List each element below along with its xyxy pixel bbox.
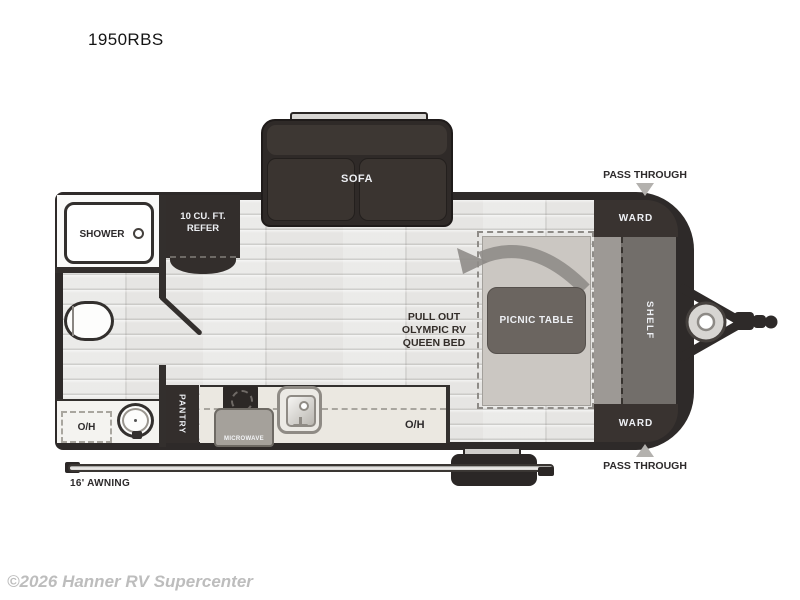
kitchen-sink-icon bbox=[277, 386, 322, 434]
microwave: MICROWAVE bbox=[214, 408, 274, 447]
pass-through-label-bottom: PASS THROUGH bbox=[585, 460, 705, 472]
refrigerator-label-line1: 10 CU. FT. bbox=[180, 211, 225, 222]
shelf: SHELF bbox=[594, 237, 676, 404]
wardrobe-top-label: WARD bbox=[619, 213, 654, 224]
awning-bar bbox=[68, 464, 554, 472]
pullout-bed-label-line1: PULL OUT bbox=[388, 311, 480, 324]
pullout-bed-label-line3: QUEEN BED bbox=[388, 337, 480, 350]
shower-label: SHOWER bbox=[71, 229, 133, 240]
watermark: ©2026 Hanner RV Supercenter bbox=[7, 572, 253, 592]
sofa-slideout: SOFA bbox=[261, 119, 453, 227]
sofa-backrest bbox=[267, 125, 447, 155]
sink-faucet-bar bbox=[293, 424, 308, 427]
pullout-bed-label-line2: OLYMPIC RV bbox=[388, 324, 480, 337]
sofa-label: SOFA bbox=[263, 173, 451, 185]
picnic-table: PICNIC TABLE bbox=[487, 287, 586, 354]
refrigerator: 10 CU. FT. REFER bbox=[166, 195, 240, 258]
picnic-table-label: PICNIC TABLE bbox=[499, 315, 573, 326]
wardrobe-bottom-label: WARD bbox=[619, 418, 654, 429]
bath-sink-faucet-icon bbox=[132, 431, 142, 439]
shower-pan-icon: SHOWER bbox=[64, 202, 154, 264]
overhead-cabinet-bath: O/H bbox=[61, 411, 112, 443]
awning-cap-right bbox=[538, 467, 554, 476]
sofa-cushions bbox=[267, 158, 447, 221]
hitch-icon bbox=[680, 272, 780, 372]
bath-vanity: O/H bbox=[57, 399, 159, 443]
overhead-cabinet-label-kitchen: O/H bbox=[405, 419, 425, 431]
bath-sink-drain-icon bbox=[134, 419, 137, 422]
floorplan-canvas: 1950RBS SOFA SHOWER 10 CU. FT. REFER bbox=[0, 0, 800, 600]
pantry: PANTRY bbox=[166, 385, 199, 443]
pass-through-arrow-top-icon bbox=[636, 183, 654, 196]
shelf-label: SHELF bbox=[644, 301, 655, 340]
microwave-label: MICROWAVE bbox=[216, 436, 272, 442]
page-title: 1950RBS bbox=[88, 30, 164, 50]
toilet-icon bbox=[64, 301, 114, 341]
wardrobe-top: WARD bbox=[594, 200, 678, 237]
bath-sink-icon bbox=[117, 403, 154, 438]
sofa-cushion-right bbox=[359, 158, 447, 221]
bathroom-wall-vertical-bottom bbox=[159, 365, 166, 447]
bathroom-wall-horizontal bbox=[55, 267, 165, 273]
pullout-bed-label: PULL OUT OLYMPIC RV QUEEN BED bbox=[388, 311, 480, 350]
pass-through-arrow-bottom-icon bbox=[636, 444, 654, 457]
bathroom-wall-vertical-top bbox=[159, 195, 166, 298]
sink-drain-icon bbox=[299, 401, 309, 411]
refrigerator-label-line2: REFER bbox=[187, 223, 219, 234]
pass-through-label-top: PASS THROUGH bbox=[585, 169, 705, 181]
awning-label: 16' AWNING bbox=[70, 478, 130, 489]
shower-area: SHOWER bbox=[57, 195, 160, 270]
coupler-ball-icon bbox=[765, 316, 778, 329]
shower-drain-icon bbox=[133, 228, 144, 239]
pantry-label: PANTRY bbox=[178, 394, 188, 434]
shelf-inner: SHELF bbox=[621, 237, 676, 404]
overhead-cabinet-label-bath: O/H bbox=[78, 422, 96, 433]
sofa-cushion-left bbox=[267, 158, 355, 221]
toilet-tank-line bbox=[72, 306, 74, 336]
